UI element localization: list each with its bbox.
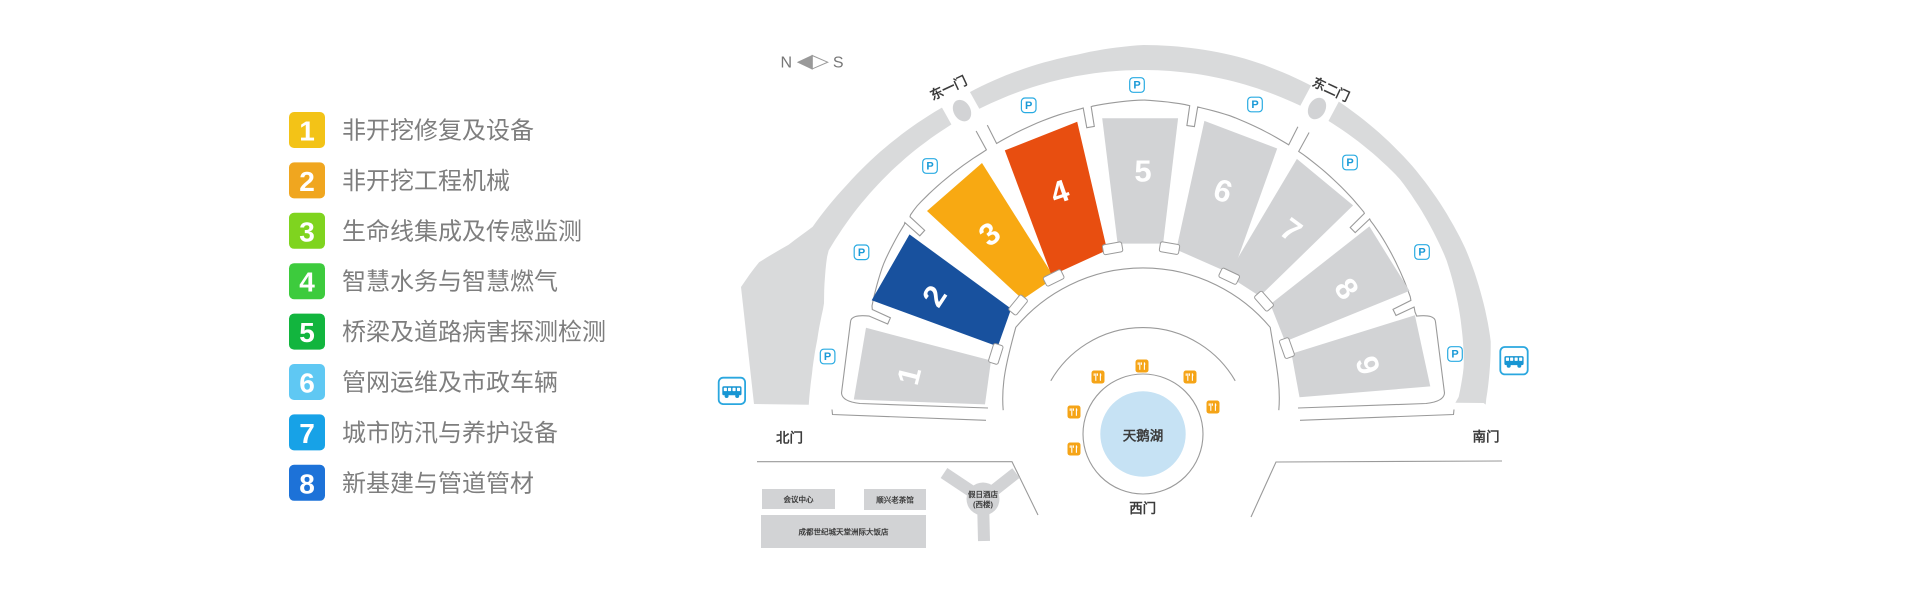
svg-text:4: 4 bbox=[299, 267, 315, 298]
svg-text:S: S bbox=[833, 55, 844, 72]
svg-text:N: N bbox=[781, 55, 793, 72]
svg-text:非开挖工程机械: 非开挖工程机械 bbox=[342, 168, 510, 195]
svg-text:生命线集成及传感监测: 生命线集成及传感监测 bbox=[342, 218, 582, 245]
svg-text:会议中心: 会议中心 bbox=[784, 494, 814, 504]
svg-text:(西楼): (西楼) bbox=[973, 499, 993, 509]
svg-text:P: P bbox=[858, 247, 865, 259]
svg-text:顺兴老茶馆: 顺兴老茶馆 bbox=[876, 495, 914, 505]
svg-text:8: 8 bbox=[299, 468, 315, 499]
svg-text:非开挖修复及设备: 非开挖修复及设备 bbox=[342, 118, 534, 145]
svg-text:天鹅湖: 天鹅湖 bbox=[1123, 428, 1164, 444]
svg-text:桥梁及道路病害探测检测: 桥梁及道路病害探测检测 bbox=[342, 319, 606, 346]
svg-text:成都世纪城天堂洲际大饭店: 成都世纪城天堂洲际大饭店 bbox=[799, 527, 889, 537]
svg-text:P: P bbox=[1133, 80, 1140, 92]
svg-text:3: 3 bbox=[299, 216, 315, 247]
svg-text:2: 2 bbox=[299, 166, 315, 197]
svg-text:假日酒店: 假日酒店 bbox=[968, 489, 998, 499]
svg-text:5: 5 bbox=[1134, 154, 1151, 189]
svg-text:西门: 西门 bbox=[1129, 500, 1156, 516]
svg-text:智慧水务与智慧燃气: 智慧水务与智慧燃气 bbox=[342, 269, 558, 296]
svg-text:P: P bbox=[1451, 349, 1458, 361]
svg-text:管网运维及市政车辆: 管网运维及市政车辆 bbox=[342, 370, 558, 397]
svg-text:P: P bbox=[1418, 247, 1425, 259]
svg-text:新基建与管道管材: 新基建与管道管材 bbox=[342, 470, 534, 497]
svg-text:1: 1 bbox=[299, 116, 315, 147]
svg-text:5: 5 bbox=[299, 317, 315, 348]
svg-text:P: P bbox=[824, 351, 831, 363]
svg-text:南门: 南门 bbox=[1473, 429, 1500, 445]
svg-text:北门: 北门 bbox=[776, 430, 803, 446]
svg-text:城市防汛与养护设备: 城市防汛与养护设备 bbox=[342, 420, 558, 447]
svg-text:P: P bbox=[1025, 100, 1032, 112]
svg-text:7: 7 bbox=[299, 418, 315, 449]
svg-text:P: P bbox=[1346, 157, 1353, 169]
svg-text:P: P bbox=[926, 161, 933, 173]
svg-text:P: P bbox=[1251, 99, 1258, 111]
svg-text:6: 6 bbox=[299, 368, 315, 399]
